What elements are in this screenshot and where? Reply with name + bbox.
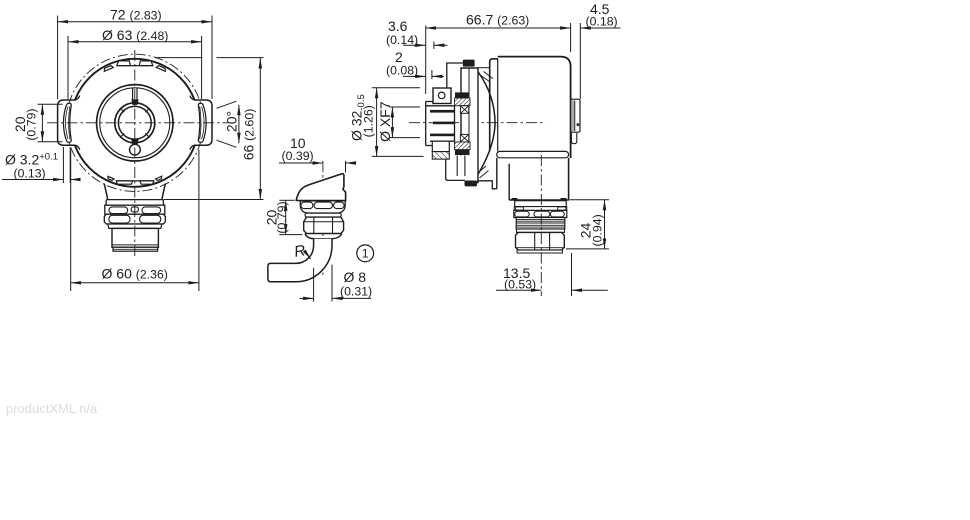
svg-text:20°: 20° [224, 111, 240, 132]
svg-text:(0.39): (0.39) [282, 149, 314, 163]
svg-text:(0.79): (0.79) [275, 201, 289, 233]
svg-text:(0.94): (0.94) [591, 214, 605, 246]
svg-text:(0.08): (0.08) [386, 64, 418, 78]
svg-text:1: 1 [362, 247, 369, 261]
svg-text:66.7 (2.63): 66.7 (2.63) [466, 12, 529, 28]
svg-text:R: R [293, 242, 307, 261]
svg-text:(0.18): (0.18) [586, 15, 618, 29]
svg-text:(0.13): (0.13) [14, 167, 46, 181]
svg-text:(0.31): (0.31) [340, 285, 372, 299]
svg-text:(1.26): (1.26) [362, 105, 376, 137]
svg-text:(0.14): (0.14) [386, 33, 418, 47]
svg-text:66 (2.60): 66 (2.60) [241, 109, 257, 161]
svg-text:3.6: 3.6 [388, 18, 408, 34]
svg-text:Ø 8: Ø 8 [344, 269, 367, 285]
svg-text:(0.53): (0.53) [504, 278, 536, 292]
svg-text:72 (2.83): 72 (2.83) [110, 7, 162, 23]
svg-text:Ø 63 (2.48): Ø 63 (2.48) [102, 27, 168, 43]
svg-text:Ø XF7: Ø XF7 [377, 101, 393, 142]
svg-text:Ø 3.2+0.1: Ø 3.2+0.1 [5, 152, 58, 168]
svg-text:Ø 60 (2.36): Ø 60 (2.36) [102, 266, 168, 282]
svg-text:(0.79): (0.79) [25, 109, 39, 141]
